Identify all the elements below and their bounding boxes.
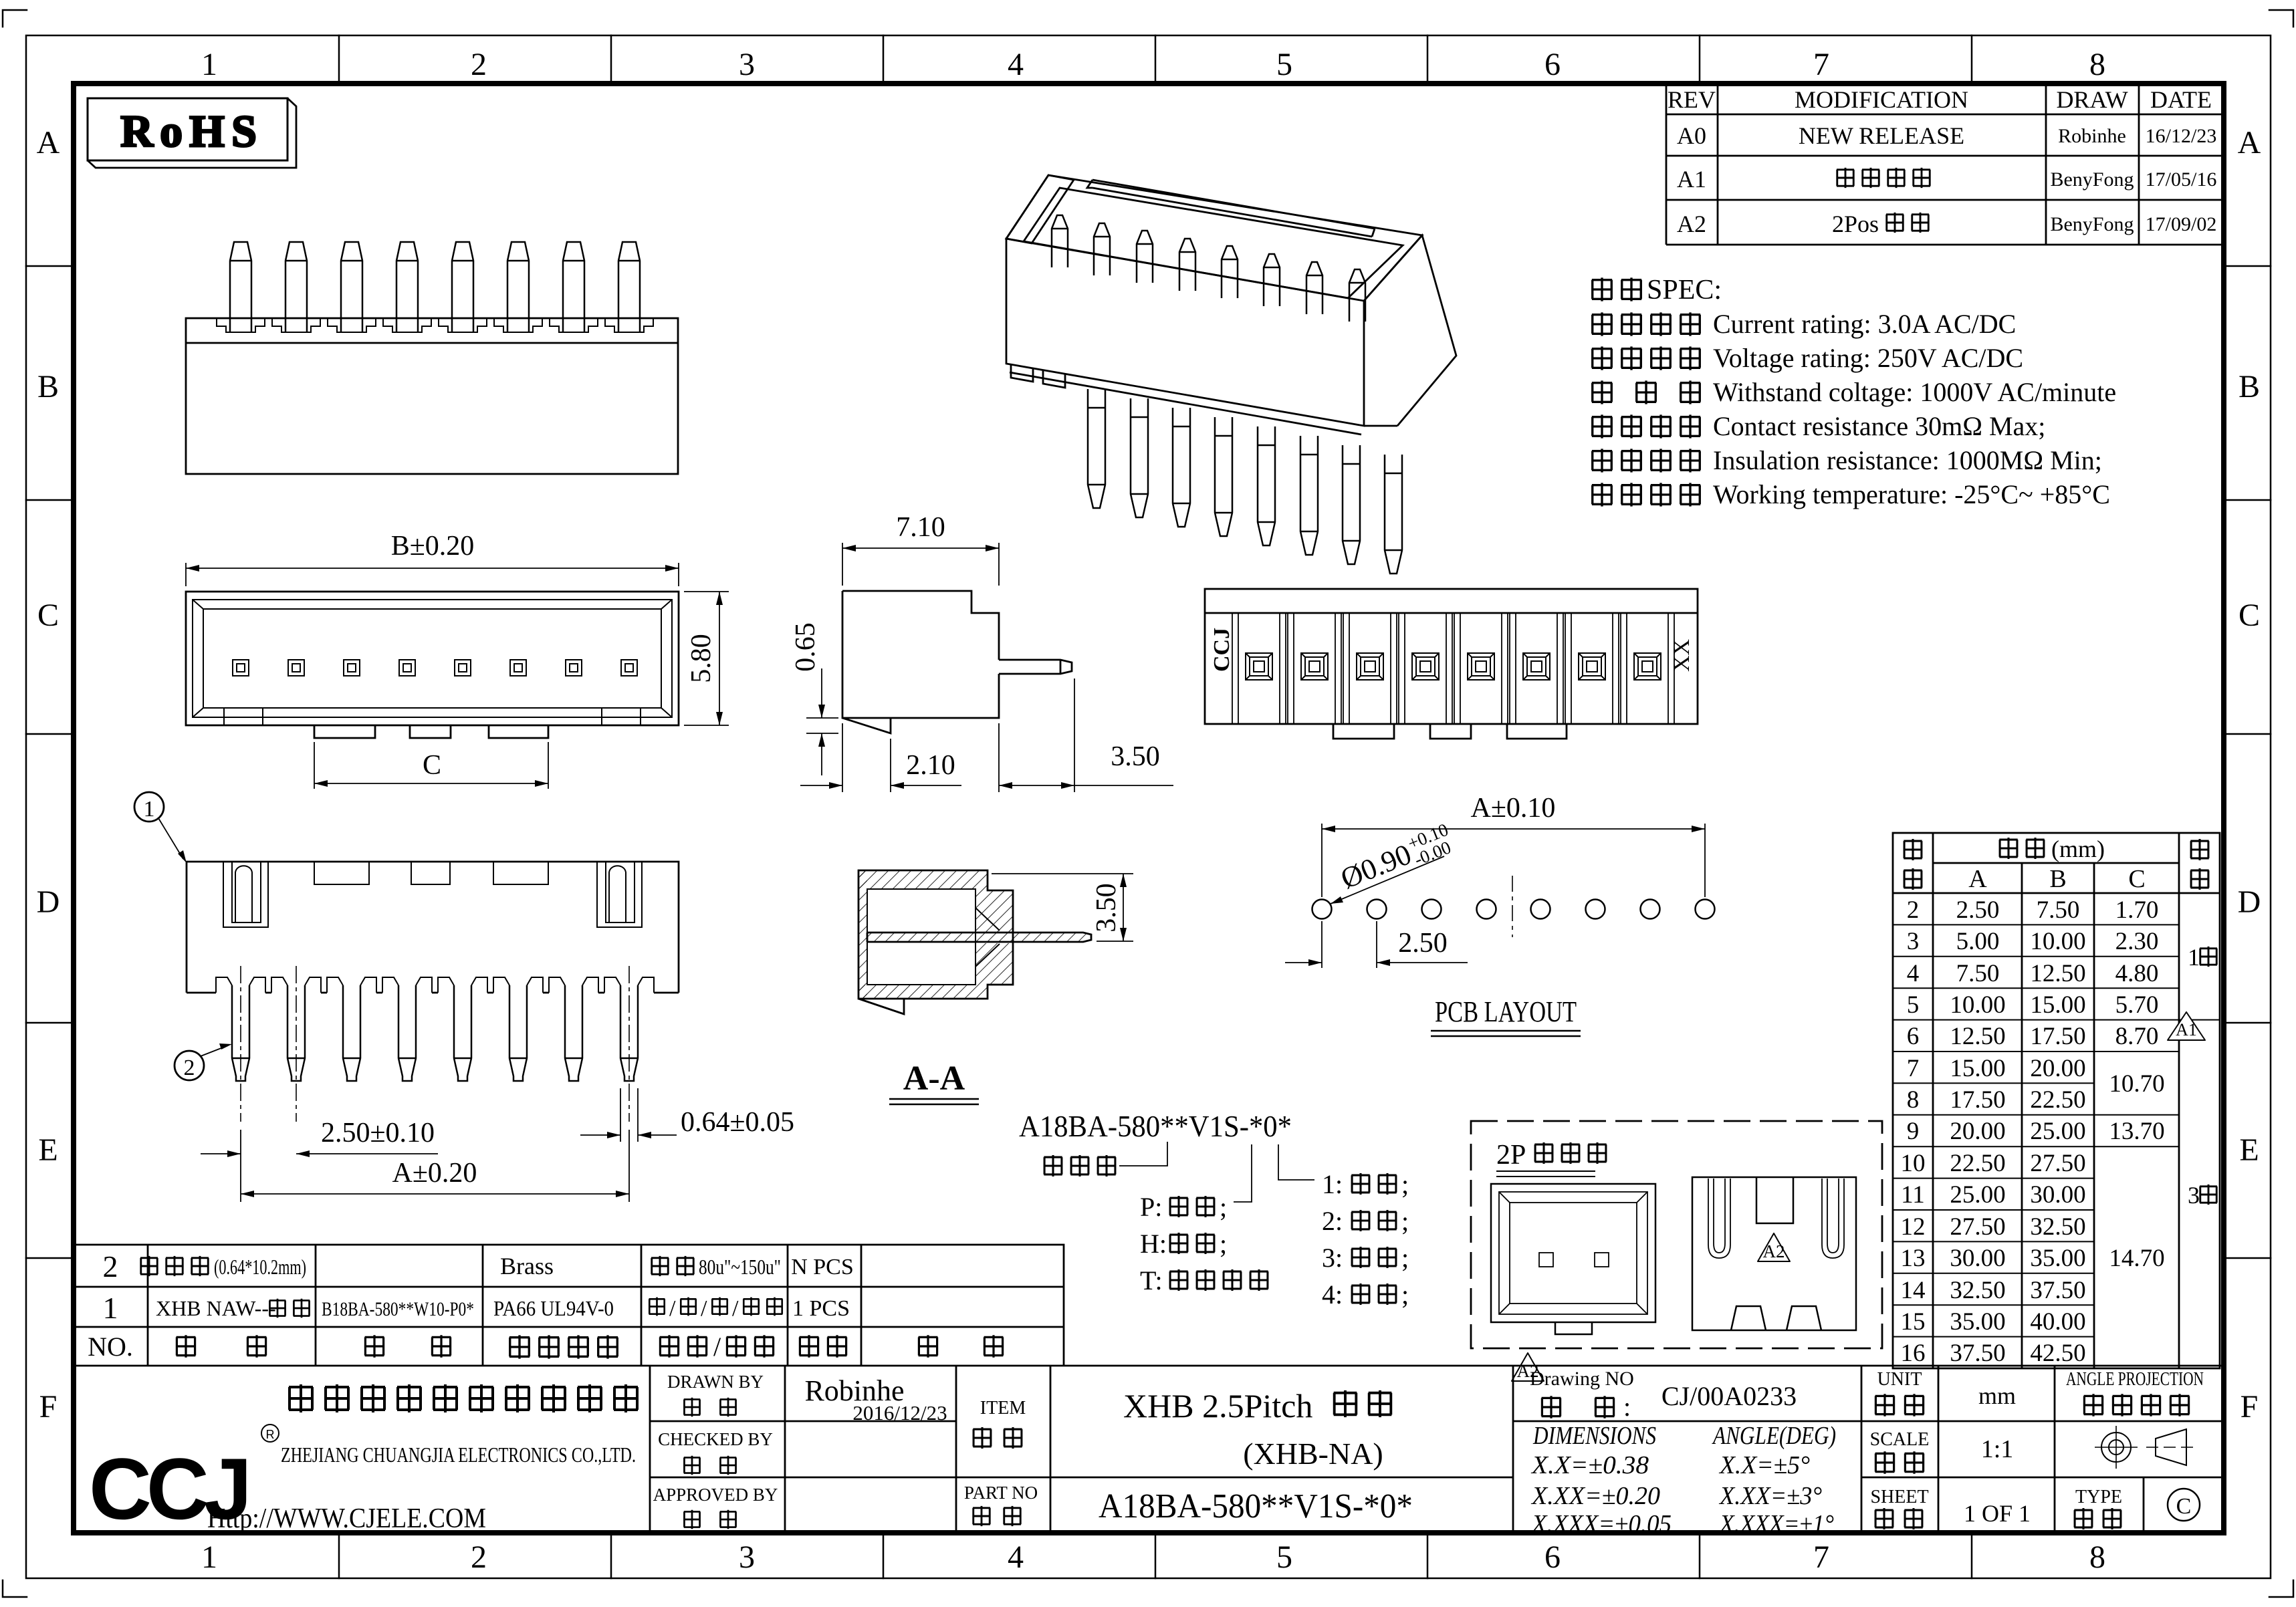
svg-text:Ø0.90: Ø0.90 xyxy=(1336,838,1415,895)
svg-text:37.50: 37.50 xyxy=(2030,1277,2085,1304)
svg-text:B: B xyxy=(2238,369,2260,404)
svg-text:CJ/00A0233: CJ/00A0233 xyxy=(1661,1381,1797,1411)
svg-text:Http://WWW.CJELE.COM: Http://WWW.CJELE.COM xyxy=(207,1503,486,1534)
svg-text:1: 1 xyxy=(103,1291,118,1325)
svg-text:ANGLE PROJECTION: ANGLE PROJECTION xyxy=(2066,1369,2204,1390)
svg-text:25.00: 25.00 xyxy=(2030,1118,2085,1145)
svg-text:Current rating: 3.0A AC/DC: Current rating: 3.0A AC/DC xyxy=(1713,309,2016,339)
svg-text:SPEC:: SPEC: xyxy=(1647,275,1722,305)
svg-text::: : xyxy=(1623,1392,1631,1422)
svg-text:8: 8 xyxy=(2089,47,2105,82)
svg-text:5: 5 xyxy=(1276,47,1292,82)
svg-text:F: F xyxy=(39,1389,58,1425)
svg-text:Insulation resistance: 1000MΩ: Insulation resistance: 1000MΩ Min; xyxy=(1713,445,2102,475)
svg-text:TYPE: TYPE xyxy=(2075,1487,2122,1507)
svg-text:7: 7 xyxy=(1907,1055,1920,1082)
svg-text:C: C xyxy=(423,750,441,781)
svg-text:X.XX=±3°: X.XX=±3° xyxy=(1718,1482,1822,1510)
svg-text:1:1: 1:1 xyxy=(1981,1435,2014,1463)
svg-text:XHB NAW---: XHB NAW--- xyxy=(156,1296,276,1320)
svg-text:;: ; xyxy=(1401,1206,1409,1236)
svg-text:DRAWN BY: DRAWN BY xyxy=(667,1372,764,1392)
svg-text:R: R xyxy=(266,1428,275,1441)
svg-text:Drawing NO: Drawing NO xyxy=(1530,1368,1634,1390)
svg-text:N PCS: N PCS xyxy=(791,1255,854,1279)
svg-text:X.XXX=±1°: X.XXX=±1° xyxy=(1718,1510,1834,1538)
svg-text:10.70: 10.70 xyxy=(2109,1070,2164,1098)
svg-text:2.10: 2.10 xyxy=(906,750,955,781)
svg-text:;: ; xyxy=(1220,1229,1227,1259)
svg-text:13: 13 xyxy=(1901,1245,1926,1272)
svg-text:MODIFICATION: MODIFICATION xyxy=(1795,86,1968,113)
svg-text:Brass: Brass xyxy=(500,1253,554,1279)
svg-text:XX: XX xyxy=(1670,639,1694,672)
svg-text:E: E xyxy=(2239,1132,2259,1168)
svg-text:(0.64*10.2mm): (0.64*10.2mm) xyxy=(214,1255,306,1279)
svg-text:40.00: 40.00 xyxy=(2030,1308,2085,1336)
svg-text:27.50: 27.50 xyxy=(1950,1213,2005,1241)
svg-text:22.50: 22.50 xyxy=(2030,1086,2085,1114)
svg-text:PART NO: PART NO xyxy=(964,1483,1038,1503)
svg-text:5: 5 xyxy=(1907,991,1920,1019)
svg-text:2.50±0.10: 2.50±0.10 xyxy=(321,1118,435,1148)
svg-text:;: ; xyxy=(1401,1243,1409,1273)
svg-text:0.64±0.05: 0.64±0.05 xyxy=(681,1107,794,1138)
svg-text:D: D xyxy=(37,884,60,920)
svg-text:(XHB-NA): (XHB-NA) xyxy=(1243,1437,1383,1471)
svg-text:ITEM: ITEM xyxy=(980,1398,1026,1418)
svg-text:REV: REV xyxy=(1668,86,1716,113)
svg-text:/: / xyxy=(669,1296,676,1321)
svg-text:3:: 3: xyxy=(1322,1243,1343,1273)
svg-text:X.XX=±0.20: X.XX=±0.20 xyxy=(1530,1482,1660,1510)
svg-text:/: / xyxy=(732,1296,739,1321)
svg-text:CCJ: CCJ xyxy=(1210,628,1234,672)
svg-text:NEW RELEASE: NEW RELEASE xyxy=(1799,122,1964,149)
svg-text:10: 10 xyxy=(1901,1150,1926,1177)
svg-text:A2: A2 xyxy=(1677,211,1706,237)
svg-text:X.XXX=±0.05: X.XXX=±0.05 xyxy=(1530,1510,1672,1538)
svg-text:35.00: 35.00 xyxy=(1950,1308,2005,1336)
svg-text:17.50: 17.50 xyxy=(2030,1023,2085,1050)
svg-text:CHECKED BY: CHECKED BY xyxy=(658,1429,773,1449)
svg-text:H:: H: xyxy=(1140,1229,1167,1259)
svg-text:X.X=±0.38: X.X=±0.38 xyxy=(1530,1451,1649,1479)
svg-text:10.00: 10.00 xyxy=(2030,928,2085,955)
svg-text:3: 3 xyxy=(739,47,755,82)
svg-text:17/05/16: 17/05/16 xyxy=(2146,168,2217,191)
svg-text:B: B xyxy=(2049,865,2066,893)
svg-text:C: C xyxy=(2238,598,2260,633)
svg-text:7.50: 7.50 xyxy=(2037,896,2080,924)
svg-text:17.50: 17.50 xyxy=(1950,1086,2005,1114)
svg-text:2.30: 2.30 xyxy=(2115,928,2159,955)
svg-text:BenyFong: BenyFong xyxy=(2050,168,2134,191)
svg-text:15: 15 xyxy=(1901,1308,1926,1336)
svg-text:4.80: 4.80 xyxy=(2115,960,2159,987)
svg-text:1: 1 xyxy=(201,1539,217,1575)
svg-text:4:: 4: xyxy=(1322,1279,1343,1310)
svg-text:80u"~150u": 80u"~150u" xyxy=(699,1255,781,1279)
svg-text:/: / xyxy=(701,1296,707,1321)
svg-text:A±0.10: A±0.10 xyxy=(1471,793,1556,824)
svg-text:ANGLE(DEG): ANGLE(DEG) xyxy=(1712,1422,1836,1450)
svg-text:1.70: 1.70 xyxy=(2115,896,2159,924)
svg-text:P:: P: xyxy=(1140,1192,1162,1222)
svg-text:1 OF 1: 1 OF 1 xyxy=(1964,1500,2031,1527)
svg-text:13.70: 13.70 xyxy=(2109,1118,2164,1145)
svg-text:Contact resistance 30mΩ Max;: Contact resistance 30mΩ Max; xyxy=(1713,411,2045,441)
svg-text:2.50: 2.50 xyxy=(1956,896,2000,924)
svg-text:15.00: 15.00 xyxy=(1950,1055,2005,1082)
svg-text:7: 7 xyxy=(1813,1539,1829,1575)
svg-text:5.00: 5.00 xyxy=(1956,928,2000,955)
svg-text:17/09/02: 17/09/02 xyxy=(2146,213,2217,235)
svg-text:A: A xyxy=(37,125,60,160)
svg-text:15.00: 15.00 xyxy=(2030,991,2085,1019)
svg-text:BenyFong: BenyFong xyxy=(2050,213,2134,235)
svg-text:9: 9 xyxy=(1907,1118,1920,1145)
svg-text:3: 3 xyxy=(739,1539,755,1575)
svg-text:10.00: 10.00 xyxy=(1950,991,2005,1019)
svg-text:A: A xyxy=(1968,865,1987,893)
svg-text:3.50: 3.50 xyxy=(1091,883,1122,933)
svg-text:A2: A2 xyxy=(1763,1241,1785,1261)
svg-text:C: C xyxy=(2128,865,2145,893)
svg-text:Working temperature: -25°C~ +8: Working temperature: -25°C~ +85°C xyxy=(1713,479,2110,509)
svg-text:A±0.20: A±0.20 xyxy=(392,1158,477,1189)
svg-text:12.50: 12.50 xyxy=(1950,1023,2005,1050)
svg-text:20.00: 20.00 xyxy=(2030,1055,2085,1082)
svg-text:2Pos: 2Pos xyxy=(1832,211,1879,237)
svg-text:14: 14 xyxy=(1901,1277,1926,1304)
svg-text:Voltage rating: 250V AC/DC: Voltage rating: 250V AC/DC xyxy=(1713,343,2023,373)
svg-text:2: 2 xyxy=(1907,896,1920,924)
svg-text:4: 4 xyxy=(1008,47,1024,82)
svg-text:5: 5 xyxy=(1276,1539,1292,1575)
svg-text:2016/12/23: 2016/12/23 xyxy=(852,1401,947,1425)
svg-text:32.50: 32.50 xyxy=(2030,1213,2085,1241)
svg-text:2: 2 xyxy=(471,1539,487,1575)
svg-text:SHEET: SHEET xyxy=(1870,1487,1928,1507)
svg-text:42.50: 42.50 xyxy=(2030,1340,2085,1367)
svg-text:5.70: 5.70 xyxy=(2115,991,2159,1019)
svg-text:Robinhe: Robinhe xyxy=(2058,125,2126,147)
svg-text:3: 3 xyxy=(1907,928,1920,955)
svg-text:2:: 2: xyxy=(1322,1206,1343,1236)
svg-text:T:: T: xyxy=(1140,1265,1163,1295)
svg-text:16/12/23: 16/12/23 xyxy=(2146,125,2217,147)
svg-text:3: 3 xyxy=(2188,1182,2200,1209)
svg-text:25.00: 25.00 xyxy=(1950,1181,2005,1209)
svg-text:DIMENSIONS: DIMENSIONS xyxy=(1532,1422,1656,1450)
svg-text:UNIT: UNIT xyxy=(1877,1369,1922,1390)
svg-text:12.50: 12.50 xyxy=(2030,960,2085,987)
svg-text:B18BA-580**W10-P0*: B18BA-580**W10-P0* xyxy=(322,1298,474,1320)
svg-text:4: 4 xyxy=(1008,1539,1024,1575)
svg-text:11: 11 xyxy=(1901,1181,1925,1209)
svg-text:32.50: 32.50 xyxy=(1950,1277,2005,1304)
svg-text:A18BA-580**V1S-*0*: A18BA-580**V1S-*0* xyxy=(1099,1487,1413,1525)
svg-text:2: 2 xyxy=(184,1056,195,1080)
svg-text:C: C xyxy=(37,598,59,633)
svg-text:2: 2 xyxy=(103,1249,118,1283)
svg-text:APPROVED BY: APPROVED BY xyxy=(653,1485,778,1505)
svg-text:A1: A1 xyxy=(2176,1020,2197,1039)
svg-text:30.00: 30.00 xyxy=(2030,1181,2085,1209)
svg-text:DRAW: DRAW xyxy=(2056,86,2128,113)
svg-text:6: 6 xyxy=(1907,1023,1920,1050)
svg-text:2P: 2P xyxy=(1496,1140,1526,1170)
svg-text:;: ; xyxy=(1401,1169,1409,1199)
svg-text:1: 1 xyxy=(2188,944,2200,971)
svg-text:A0: A0 xyxy=(1677,122,1706,149)
svg-text:B±0.20: B±0.20 xyxy=(391,531,475,562)
svg-text:A1: A1 xyxy=(1677,166,1706,193)
svg-text:X.X=±5°: X.X=±5° xyxy=(1718,1451,1810,1479)
svg-text:A-A: A-A xyxy=(903,1060,965,1098)
svg-text:2: 2 xyxy=(471,47,487,82)
svg-text:7.50: 7.50 xyxy=(1956,960,2000,987)
svg-text:14.70: 14.70 xyxy=(2109,1245,2164,1272)
svg-text:1:: 1: xyxy=(1322,1169,1343,1199)
svg-text:;: ; xyxy=(1401,1279,1409,1310)
svg-text:/: / xyxy=(713,1332,721,1362)
svg-text:8: 8 xyxy=(2089,1539,2105,1575)
svg-text:27.50: 27.50 xyxy=(2030,1150,2085,1177)
svg-text:B: B xyxy=(37,369,59,404)
svg-text:7: 7 xyxy=(1813,47,1829,82)
svg-text:3.50: 3.50 xyxy=(1111,741,1160,772)
svg-text:A: A xyxy=(2238,125,2261,160)
svg-text:8: 8 xyxy=(1907,1086,1920,1114)
svg-text:E: E xyxy=(38,1132,58,1168)
svg-text:F: F xyxy=(2241,1389,2259,1425)
svg-text:16: 16 xyxy=(1901,1340,1926,1367)
svg-text:(mm): (mm) xyxy=(2051,836,2105,862)
svg-text:D: D xyxy=(2238,884,2261,920)
svg-text:5.80: 5.80 xyxy=(686,634,717,683)
svg-text:12: 12 xyxy=(1901,1213,1926,1241)
svg-text:8.70: 8.70 xyxy=(2115,1023,2159,1050)
svg-text:ZHEJIANG CHUANGJIA ELECTRONICS: ZHEJIANG CHUANGJIA ELECTRONICS CO.,LTD. xyxy=(281,1443,636,1467)
svg-text:Withstand coltage: 1000V AC/mi: Withstand coltage: 1000V AC/minute xyxy=(1713,377,2116,407)
svg-text:NO.: NO. xyxy=(88,1332,133,1362)
svg-text:mm: mm xyxy=(1978,1382,2016,1409)
svg-text:37.50: 37.50 xyxy=(1950,1340,2005,1367)
svg-text:7.10: 7.10 xyxy=(896,512,945,543)
svg-text:4: 4 xyxy=(1907,960,1920,987)
svg-text:0.65: 0.65 xyxy=(790,622,821,672)
svg-text:1: 1 xyxy=(144,797,155,822)
svg-text:22.50: 22.50 xyxy=(1950,1150,2005,1177)
svg-text:1: 1 xyxy=(201,47,217,82)
svg-text:35.00: 35.00 xyxy=(2030,1245,2085,1272)
svg-text:XHB 2.5Pitch: XHB 2.5Pitch xyxy=(1123,1387,1312,1425)
svg-text:6: 6 xyxy=(1544,1539,1561,1575)
svg-text:1 PCS: 1 PCS xyxy=(792,1296,850,1321)
svg-text:DATE: DATE xyxy=(2150,86,2212,113)
svg-text:A18BA-580**V1S-*0*: A18BA-580**V1S-*0* xyxy=(1019,1109,1292,1143)
svg-text:6: 6 xyxy=(1544,47,1561,82)
svg-text:20.00: 20.00 xyxy=(1950,1118,2005,1145)
svg-text:2.50: 2.50 xyxy=(1398,928,1448,959)
svg-text:SCALE: SCALE xyxy=(1870,1429,1930,1450)
svg-text:RoHS: RoHS xyxy=(120,106,263,156)
svg-text:PCB LAYOUT: PCB LAYOUT xyxy=(1435,995,1577,1028)
svg-text:C: C xyxy=(2176,1494,2192,1519)
svg-text:PA66 UL94V-0: PA66 UL94V-0 xyxy=(493,1296,614,1320)
svg-text:30.00: 30.00 xyxy=(1950,1245,2005,1272)
svg-text:;: ; xyxy=(1220,1192,1227,1222)
